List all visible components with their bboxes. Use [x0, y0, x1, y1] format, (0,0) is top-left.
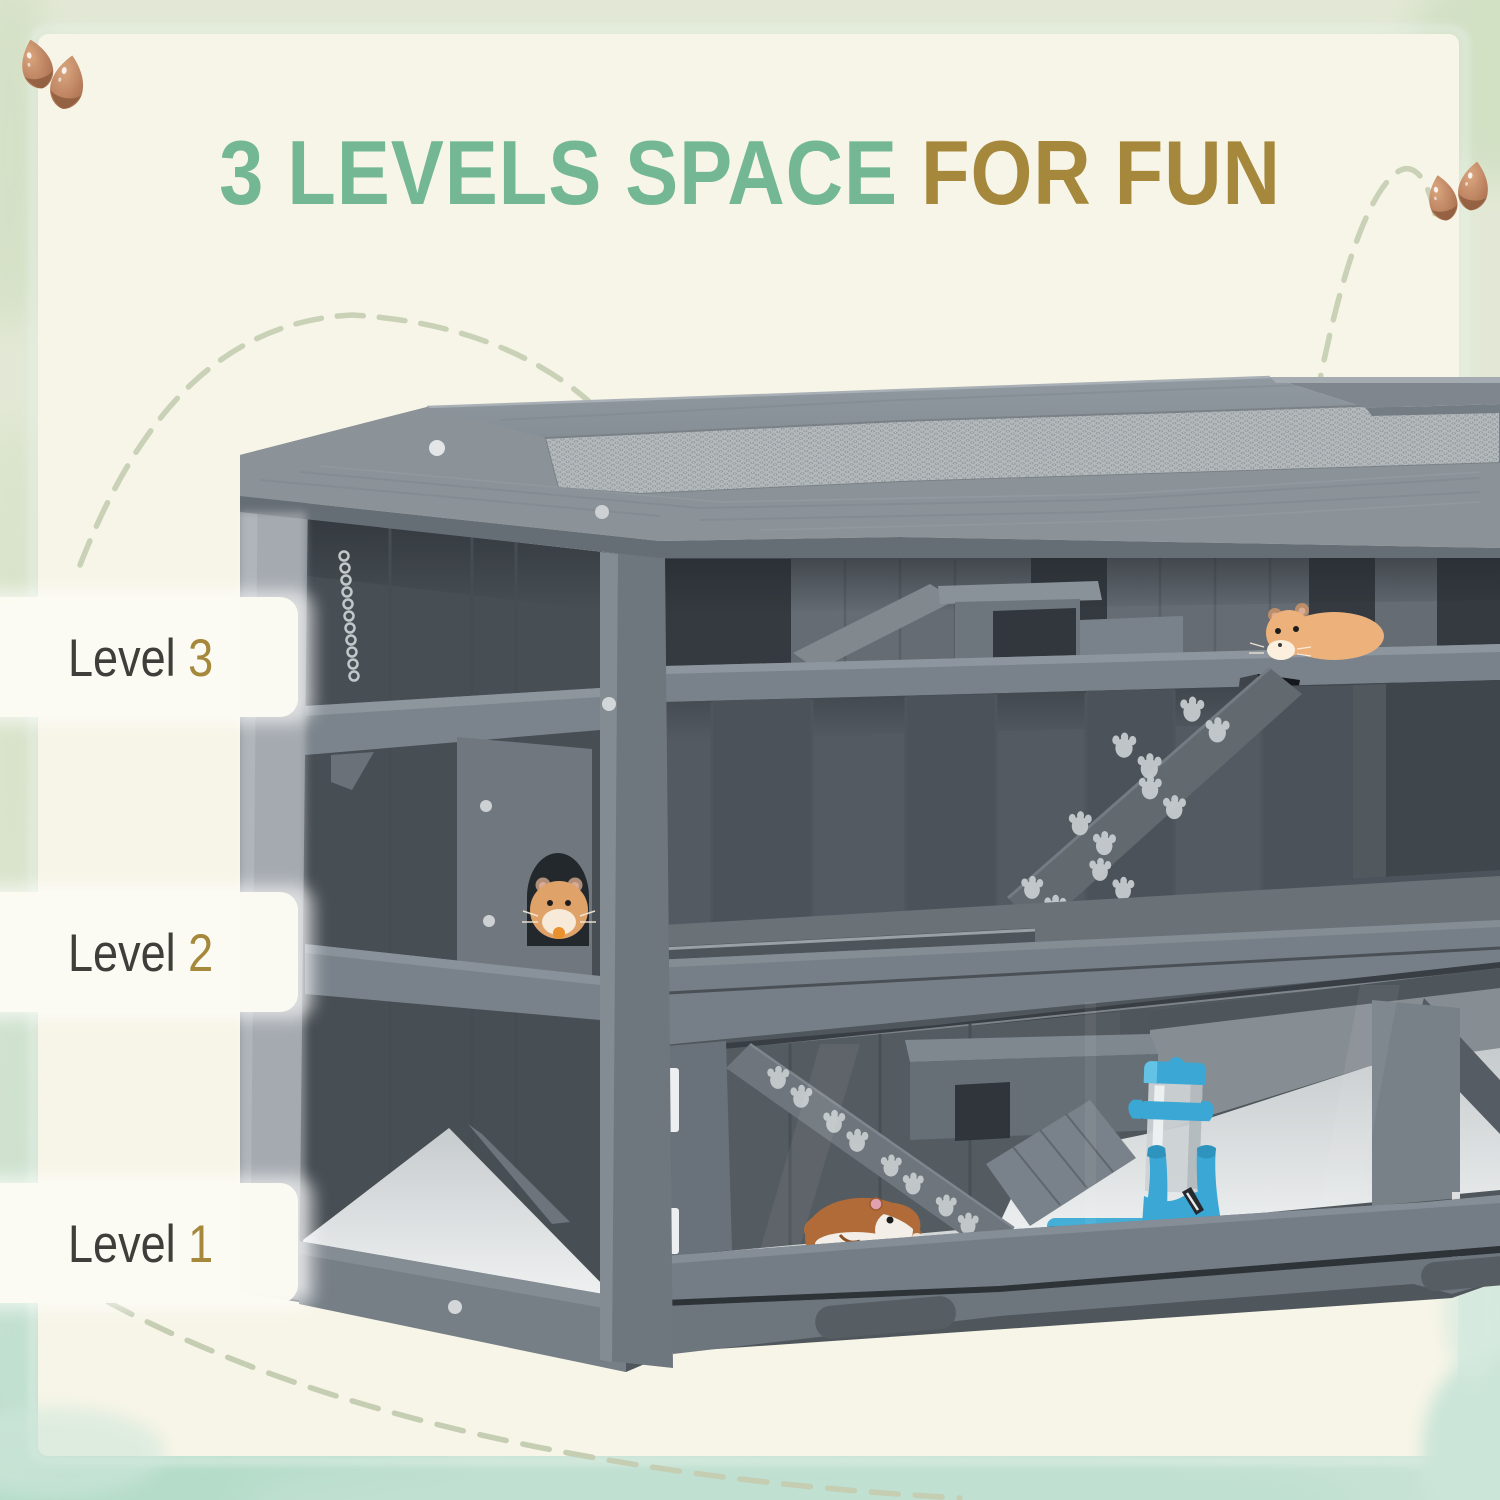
svg-text:Level 2: Level 2	[68, 924, 213, 983]
svg-text:Level 3: Level 3	[68, 629, 213, 688]
svg-text:Level 1: Level 1	[68, 1215, 213, 1274]
svg-text:3 LEVELS SPACE FOR FUN: 3 LEVELS SPACE FOR FUN	[219, 123, 1281, 224]
